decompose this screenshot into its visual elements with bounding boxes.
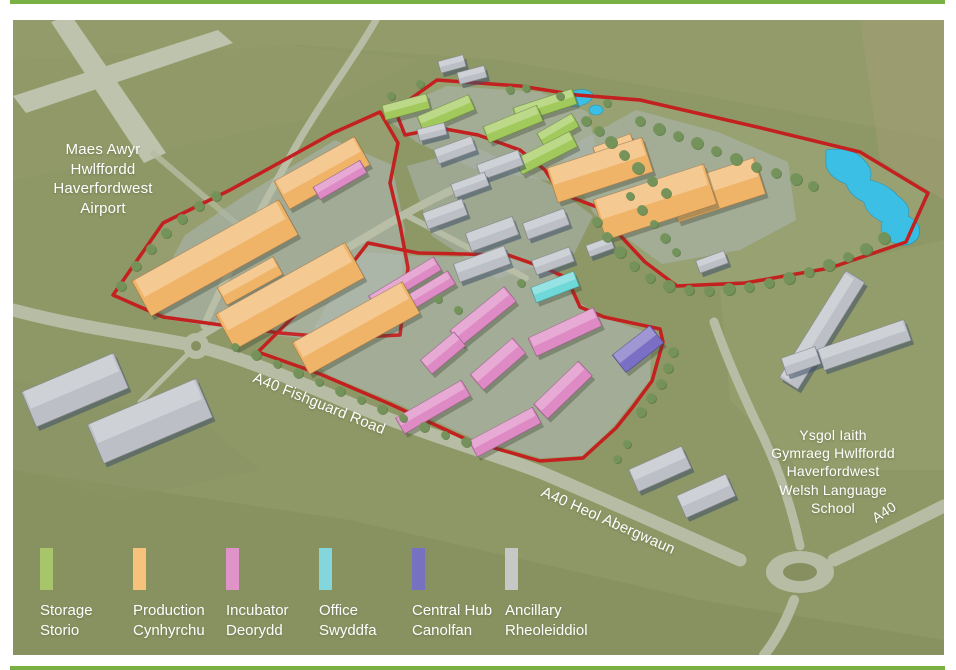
tree [764,278,774,288]
tree [454,306,462,314]
tree [843,252,853,262]
tree [636,407,646,417]
tree [594,126,604,136]
tree [646,393,656,403]
tree [684,285,694,295]
tree [771,168,781,178]
tree [517,279,525,287]
tree [704,286,714,296]
tree [506,86,514,94]
tree [461,437,471,447]
tree [293,368,303,378]
tree [357,396,365,404]
tree [231,343,239,351]
tree [441,431,449,439]
tree [592,217,602,227]
tree [751,162,761,172]
tree [416,80,424,88]
tree [663,363,673,373]
tree [860,243,872,255]
bottom-border-bar [10,666,945,670]
tree [614,246,626,258]
tree [637,205,647,215]
tree [522,84,530,92]
tree [790,173,802,185]
tree [581,116,591,126]
tree [635,116,645,126]
tree [419,422,429,432]
tree [647,176,657,186]
tree [878,232,890,244]
tree [691,137,703,149]
tree [668,347,678,357]
tree [711,146,721,156]
tree [626,192,634,200]
tree [619,150,629,160]
roundabout-island [783,563,817,581]
tree [804,267,814,277]
tree [653,123,665,135]
tree [672,248,680,256]
tree [723,283,735,295]
tree [315,378,323,386]
tree [251,350,261,360]
tree [387,92,395,100]
tree [131,261,141,271]
tree [556,92,564,100]
tree [744,282,754,292]
tree [377,404,387,414]
tree [730,153,742,165]
tree [656,379,666,389]
tree [434,295,442,303]
tree [605,136,617,148]
tree [808,181,818,191]
tree [602,232,612,242]
tree [177,214,187,224]
tree [663,280,675,292]
tree [194,201,204,211]
tree [629,261,639,271]
tree [161,228,171,238]
tree [211,191,221,201]
masterplan-figure: Maes AwyrHwlfforddHaverfordwestAirportYs… [0,0,956,670]
tree [632,162,644,174]
tree [823,259,835,271]
tree [603,99,611,107]
roundabout-island [191,341,201,351]
tree [273,360,281,368]
tree [623,440,631,448]
tree [650,220,658,228]
tree [613,455,621,463]
tree [146,244,156,254]
tree [783,272,795,284]
map-canvas [13,15,944,655]
site-map [0,0,956,670]
tree [673,131,683,141]
tree [399,414,407,422]
tree [660,233,670,243]
tree [335,386,345,396]
tree [116,281,126,291]
tree [645,273,655,283]
tree [661,188,671,198]
